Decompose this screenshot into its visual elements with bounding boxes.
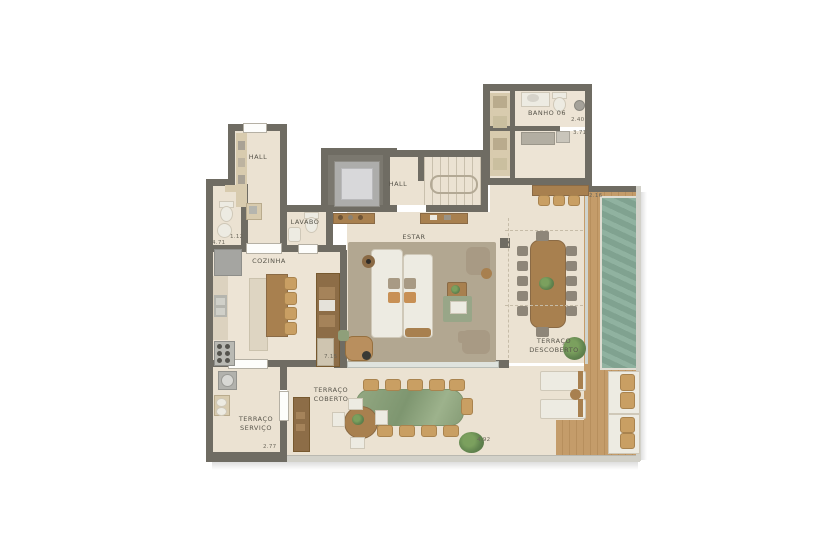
room-label-terraco-coberto: TERRAÇO COBERTO bbox=[308, 386, 354, 404]
bench bbox=[405, 328, 431, 337]
shadow bbox=[212, 462, 638, 470]
dimension-label: 4.92 bbox=[477, 437, 490, 443]
elevator-car-inner bbox=[341, 168, 373, 200]
dining-chair bbox=[536, 327, 549, 337]
closet-shelf bbox=[493, 96, 507, 108]
room-label-hall-elevator: HALL bbox=[378, 180, 418, 189]
label-line: TERRAÇO bbox=[524, 337, 584, 346]
wall-segment bbox=[280, 366, 287, 390]
dining-chair bbox=[566, 306, 577, 316]
shower-icon bbox=[574, 100, 585, 111]
room-label-lavabo: LAVABO bbox=[283, 218, 327, 227]
wall-segment bbox=[483, 84, 592, 91]
stool bbox=[284, 277, 297, 290]
shadow bbox=[641, 192, 647, 460]
wall-segment bbox=[483, 178, 592, 185]
wall-perimeter-left bbox=[206, 179, 213, 462]
bar-stool bbox=[553, 195, 565, 206]
side-table bbox=[570, 389, 581, 400]
label-line: SERVIÇO bbox=[232, 424, 280, 433]
wall-segment bbox=[228, 124, 235, 186]
room-label-cozinha: COZINHA bbox=[244, 257, 294, 266]
cabinet-drawer bbox=[296, 424, 305, 431]
vase bbox=[338, 215, 343, 220]
dining-chair bbox=[566, 276, 577, 286]
bar-stool bbox=[538, 195, 550, 206]
decor-item bbox=[430, 215, 437, 220]
pouf bbox=[338, 330, 349, 341]
bar-stool bbox=[568, 195, 580, 206]
closet-shelf bbox=[238, 175, 245, 184]
toilet-icon bbox=[220, 206, 233, 222]
counter bbox=[521, 132, 555, 145]
cabinet-sink bbox=[249, 206, 257, 214]
burner bbox=[217, 344, 222, 349]
cabinet-drawer bbox=[296, 412, 305, 419]
guide-line bbox=[508, 218, 509, 358]
fridge bbox=[214, 249, 242, 276]
burner bbox=[217, 358, 222, 363]
label-line: TERRAÇO bbox=[308, 386, 354, 395]
vase bbox=[358, 215, 363, 220]
daybed-cushion bbox=[620, 417, 635, 433]
dining-chair bbox=[566, 246, 577, 256]
burner bbox=[225, 344, 230, 349]
burner bbox=[217, 351, 222, 356]
closet-shelf bbox=[493, 158, 507, 170]
stool bbox=[284, 292, 297, 305]
cushion bbox=[388, 278, 400, 289]
sink-bowl bbox=[216, 398, 227, 407]
pool-deck-extension bbox=[556, 420, 584, 455]
washer-drum bbox=[221, 374, 234, 387]
wall-segment bbox=[280, 124, 287, 252]
burner bbox=[225, 351, 230, 356]
wall-segment bbox=[418, 157, 424, 181]
dining-chair bbox=[517, 276, 528, 286]
stair-railing bbox=[430, 175, 478, 194]
terrace-chair bbox=[443, 425, 459, 437]
swimming-pool bbox=[600, 196, 641, 370]
label-line: COBERTO bbox=[308, 395, 354, 404]
utility-sink bbox=[556, 131, 570, 143]
sink-bowl bbox=[216, 298, 225, 305]
decor-item bbox=[444, 215, 451, 220]
pouf bbox=[458, 331, 470, 343]
wall-segment bbox=[390, 150, 488, 157]
wall-segment bbox=[326, 205, 333, 252]
stool bbox=[284, 307, 297, 320]
lower-cabinet bbox=[317, 338, 334, 366]
guide-line bbox=[505, 305, 583, 306]
dining-chair bbox=[566, 291, 577, 301]
dimension-label: 2.77 bbox=[263, 444, 276, 450]
terrace-chair bbox=[449, 379, 465, 391]
wall-segment bbox=[426, 205, 488, 212]
dining-chair bbox=[517, 291, 528, 301]
stool bbox=[284, 322, 297, 335]
bath-shelf bbox=[225, 185, 239, 192]
lounger-arm bbox=[578, 399, 583, 417]
dimension-label: 4.71 bbox=[212, 240, 225, 246]
terrace-chair bbox=[399, 425, 415, 437]
wall-segment bbox=[383, 205, 393, 212]
sink-bowl bbox=[216, 308, 225, 315]
oven bbox=[319, 300, 335, 311]
room-label-terraco-servico: TERRAÇO SERVIÇO bbox=[232, 415, 280, 433]
sink-bowl bbox=[216, 407, 227, 416]
plant-icon bbox=[352, 414, 364, 425]
vase bbox=[348, 215, 353, 220]
door bbox=[246, 243, 282, 254]
wall-segment bbox=[206, 452, 287, 462]
sink-basin bbox=[527, 94, 539, 102]
terrace-chair bbox=[461, 398, 473, 415]
lounger-arm bbox=[578, 371, 583, 389]
dimension-label: 2.40 bbox=[571, 117, 584, 123]
cabinet-panel bbox=[319, 287, 335, 299]
dining-chair bbox=[517, 261, 528, 271]
wall-segment bbox=[510, 91, 515, 178]
room-label-hall: HALL bbox=[238, 153, 278, 162]
side-table bbox=[362, 351, 371, 360]
guide-line bbox=[505, 230, 583, 231]
terrace-chair bbox=[377, 425, 393, 437]
dining-chair bbox=[566, 261, 577, 271]
daybed-cushion bbox=[620, 374, 635, 391]
terrace-chair bbox=[385, 379, 401, 391]
tray bbox=[450, 301, 467, 314]
door bbox=[243, 123, 267, 133]
door bbox=[279, 391, 289, 421]
burner bbox=[225, 358, 230, 363]
terrace-railing-bottom bbox=[287, 455, 640, 462]
label-line: DESCOBERTO bbox=[524, 346, 584, 355]
sliding-glass-door bbox=[347, 361, 499, 368]
door bbox=[298, 244, 318, 254]
cafe-chair bbox=[350, 437, 365, 449]
dimension-label: 7.15 bbox=[324, 354, 337, 360]
cafe-chair bbox=[332, 412, 345, 427]
floor-plan: HALL LAVABO HALL ESTAR COZINHA BANHO 06 … bbox=[0, 0, 838, 554]
room-label-banho: BANHO 06 bbox=[520, 109, 574, 118]
daybed-cushion bbox=[620, 433, 635, 449]
terrace-chair bbox=[421, 425, 437, 437]
room-label-terraco-descoberto: TERRAÇO DESCOBERTO bbox=[524, 337, 584, 355]
terrace-chair bbox=[429, 379, 445, 391]
dining-chair bbox=[536, 231, 549, 241]
plant-icon bbox=[539, 277, 554, 290]
wall-segment bbox=[321, 148, 328, 212]
dimension-label: 1.12 bbox=[230, 234, 243, 240]
closet-shelf bbox=[238, 141, 245, 150]
dining-chair bbox=[517, 246, 528, 256]
terrace-chair bbox=[363, 379, 379, 391]
daybed-cushion bbox=[620, 392, 635, 409]
cushion bbox=[388, 292, 400, 303]
dimension-label: 3.71 bbox=[573, 130, 586, 136]
closet-shelf bbox=[493, 138, 507, 150]
cushion bbox=[404, 292, 416, 303]
glass-wall bbox=[585, 192, 588, 364]
dining-chair bbox=[517, 306, 528, 316]
closet-shelf bbox=[493, 116, 507, 128]
pedestal-sink-icon bbox=[288, 227, 301, 242]
cabinet-panel bbox=[319, 315, 335, 327]
label-line: TERRAÇO bbox=[232, 415, 280, 424]
room-label-estar: ESTAR bbox=[392, 233, 436, 242]
side-table bbox=[481, 268, 492, 279]
cushion bbox=[404, 278, 416, 289]
dimension-label: 2.16 bbox=[589, 193, 602, 199]
plant-icon bbox=[451, 285, 460, 294]
terrace-chair bbox=[407, 379, 423, 391]
lamp-icon bbox=[366, 259, 371, 264]
cafe-chair bbox=[375, 410, 388, 425]
wall-segment bbox=[483, 84, 490, 185]
